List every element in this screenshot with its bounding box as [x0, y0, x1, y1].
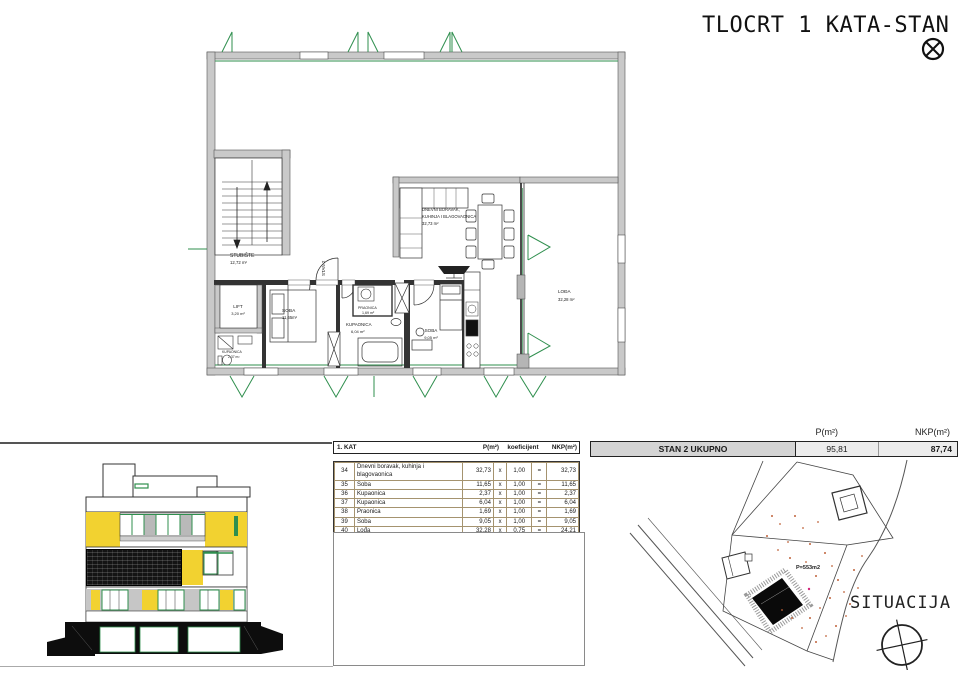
elevation-dark-facade-texture: [86, 549, 182, 586]
cell-num: 37: [335, 499, 355, 508]
room-area: 32,73 m²: [422, 221, 439, 226]
cell-p: 1,69: [463, 508, 494, 517]
bedroom-2: SOBA 9,05 m²: [412, 284, 462, 350]
room-area: 1,69 m²: [362, 311, 375, 315]
stairwell: STUBIŠTE 12,72 m²: [214, 150, 290, 265]
cell-eq: =: [532, 489, 547, 498]
elevation-base: [47, 622, 283, 656]
bedroom-1: SOBA 11,65m²: [270, 290, 316, 342]
cell-nkp: 11,65: [547, 480, 579, 489]
section-divider: [0, 442, 332, 444]
room-label: LIFT: [233, 304, 243, 309]
cell-name: Kupaonica: [354, 499, 462, 508]
north-symbol-icon: [920, 36, 946, 62]
living-dining: DNEVNI BORAVAK, KUHINJA I BLAGOVAONICA 3…: [400, 188, 514, 278]
cell-name: Kupaonica: [354, 489, 462, 498]
cell-koef: 1,00: [507, 499, 532, 508]
room-label: STUBIŠTE: [230, 252, 255, 259]
cell-p: 2,37: [463, 489, 494, 498]
cell-p: 6,04: [463, 499, 494, 508]
cell-koef: 1,00: [507, 508, 532, 517]
site-plan: P=553m2 SITUACIJA: [620, 458, 960, 670]
cell-times: x: [493, 480, 506, 489]
table-row: 38 Praonica 1,69 x 1,00 = 1,69: [335, 508, 579, 517]
room-area: 6,04 m²: [351, 329, 365, 334]
cell-name: Soba: [354, 517, 462, 526]
cell-num: 36: [335, 489, 355, 498]
cell-eq: =: [532, 463, 547, 481]
room-label: DNEVNI BORAVAK,: [422, 207, 460, 212]
summary-col-p: P(m²): [778, 427, 838, 437]
cell-num: 34: [335, 463, 355, 481]
cell-times: x: [493, 489, 506, 498]
entry-apartment-label: STAN 2: [321, 260, 326, 276]
penthouse: [103, 464, 250, 497]
room-label: LOĐA: [558, 289, 571, 294]
cell-times: x: [493, 499, 506, 508]
cell-name: Dnevni boravak, kuhinja i blagovaonica: [354, 463, 462, 481]
table-row: 36 Kupaonica 2,37 x 1,00 = 2,37: [335, 489, 579, 498]
bathroom-large: KUPAONICA 6,04 m²: [346, 319, 402, 367]
room-area: 2,37 m²: [228, 355, 240, 359]
room-area: 3,20 m²: [231, 311, 245, 316]
table-row: 35 Soba 11,65 x 1,00 = 11,65: [335, 480, 579, 489]
cell-nkp: 6,04: [547, 499, 579, 508]
table-row: 34 Dnevni boravak, kuhinja i blagovaonic…: [335, 463, 579, 481]
bathroom-small: KUPAONICA 2,37 m²: [218, 336, 252, 365]
subject-building-footprint: [747, 570, 810, 632]
cell-nkp: 32,73: [547, 463, 579, 481]
kitchen: [464, 272, 480, 368]
laundry: PRAONICA 1,69 m²: [353, 285, 392, 316]
cell-times: x: [493, 463, 506, 481]
summary-p-value: 95,81: [796, 442, 879, 456]
room-area: 32,28 m²: [558, 297, 575, 302]
elevation-lower-floor: [86, 587, 247, 622]
cell-koef: 1,00: [507, 489, 532, 498]
area-table-header: 1. KAT P(m²) koeficijent NKP(m²): [333, 441, 580, 454]
site-plan-title: SITUACIJA: [850, 593, 951, 613]
parcel-area-label: P=553m2: [796, 565, 820, 571]
summary-col-nkp: NKP(m²): [890, 427, 950, 437]
cell-eq: =: [532, 499, 547, 508]
cell-num: 35: [335, 480, 355, 489]
cell-p: 11,65: [463, 480, 494, 489]
cell-name: Soba: [354, 480, 462, 489]
cell-eq: =: [532, 508, 547, 517]
page-title: TLOCRT 1 KATA-STAN 2: [702, 13, 958, 38]
cell-num: 39: [335, 517, 355, 526]
drawing-sheet: { "header": {"title": "TLOCRT 1 KATA-STA…: [0, 0, 960, 670]
cell-times: x: [493, 517, 506, 526]
col-nkp: NKP(m²): [547, 444, 579, 451]
elevation-top-floor: [86, 512, 247, 547]
neighbor-building-2: [722, 552, 752, 579]
compass-icon: [871, 614, 933, 670]
room-label: KUPAONICA: [346, 322, 372, 327]
room-label: PRAONICA: [358, 306, 377, 310]
room-area: 11,65m²: [282, 315, 298, 320]
cell-nkp: 9,05: [547, 517, 579, 526]
table-row: 37 Kupaonica 6,04 x 1,00 = 6,04: [335, 499, 579, 508]
left-panel-bottom-border: [0, 666, 333, 667]
roads: [630, 460, 907, 666]
cell-num: 38: [335, 508, 355, 517]
cell-p: 9,05: [463, 517, 494, 526]
col-koeficijent: koeficijent: [499, 444, 547, 451]
cell-name: Praonica: [354, 508, 462, 517]
summary-label: STAN 2 UKUPNO: [591, 442, 796, 456]
room-area: 9,05 m²: [424, 335, 438, 340]
lift: LIFT 3,20 m²: [215, 285, 262, 333]
cell-koef: 1,00: [507, 480, 532, 489]
room-label: SOBA: [425, 328, 439, 333]
table-row: 39 Soba 9,05 x 1,00 = 9,05: [335, 517, 579, 526]
loggia: LOĐA 32,28 m²: [517, 183, 575, 368]
col-p: P(m²): [469, 444, 499, 451]
floor-label: 1. KAT: [334, 444, 469, 451]
room-label2: KUHINJA I BLAGOVAONICA: [422, 214, 476, 219]
apartment-total-bar: STAN 2 UKUPNO 95,81 87,74: [590, 441, 958, 457]
floor-plan: STUBIŠTE 12,72 m² STAN 2 LIFT: [188, 20, 638, 405]
cell-koef: 1,00: [507, 517, 532, 526]
cell-eq: =: [532, 517, 547, 526]
empty-notes-panel: [333, 532, 585, 666]
room-area: 12,72 m²: [230, 260, 248, 265]
roof-slab: [86, 497, 247, 512]
cell-koef: 1,00: [507, 463, 532, 481]
cell-nkp: 2,37: [547, 489, 579, 498]
cell-nkp: 1,69: [547, 508, 579, 517]
cell-p: 32,73: [463, 463, 494, 481]
cell-times: x: [493, 508, 506, 517]
summary-nkp-value: 87,74: [879, 442, 957, 456]
room-label: SOBA: [282, 308, 296, 314]
room-label: KUPAONICA: [222, 350, 242, 354]
cell-eq: =: [532, 480, 547, 489]
neighbor-building-1: [832, 486, 867, 520]
